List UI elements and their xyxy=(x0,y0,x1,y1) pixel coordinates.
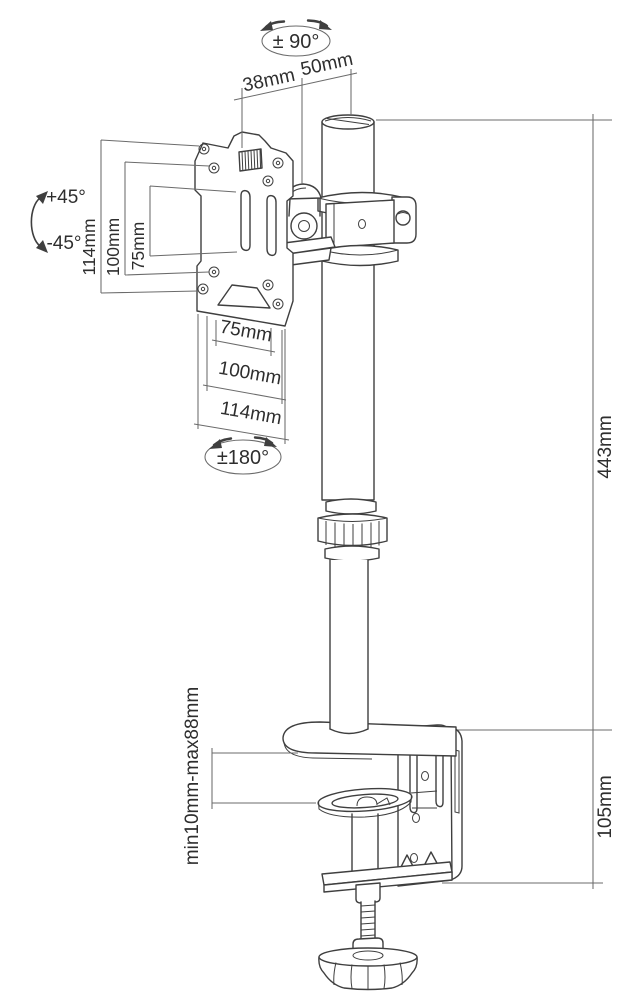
dim-clamp-grip: min10mm-max88mm xyxy=(182,687,316,865)
pole-upper-tube xyxy=(322,115,374,500)
clamp-star-knob xyxy=(319,948,417,990)
diagram-svg: ± 90° 38mm 50mm +45° -45° 114mm 100mm 75… xyxy=(0,0,630,1000)
rotation-plate-label: ±180° xyxy=(217,447,269,469)
tilt-up-label: +45° xyxy=(46,187,86,208)
desk-clamp xyxy=(283,560,462,990)
offset-front-label: 38mm xyxy=(241,65,297,97)
pivot-bolt-head xyxy=(291,213,317,239)
clamp-top-plate xyxy=(283,722,456,756)
pole-lower-fill xyxy=(330,560,368,734)
collar-lower-flange xyxy=(325,546,379,561)
vesa-v100-label: 100mm xyxy=(103,218,123,276)
tilt-down-label: -45° xyxy=(46,233,81,254)
rotation-cw-arrowhead-icon xyxy=(264,437,277,447)
vesa-v114-label: 114mm xyxy=(79,218,99,275)
rotation-ccw-arrowhead-icon xyxy=(260,21,273,31)
dim-vesa-horizontal: 75mm 100mm 114mm ±180° xyxy=(194,314,289,474)
rotation-cw-arrowhead-icon xyxy=(319,20,332,30)
height-adjust-collar xyxy=(318,499,387,561)
pole-height-label: 443mm xyxy=(595,415,616,478)
vesa-h114-label: 114mm xyxy=(219,398,284,429)
dim-tilt: +45° -45° xyxy=(31,187,86,254)
clamp-grip-range-label: min10mm-max88mm xyxy=(182,687,203,865)
rotation-pole-label: ± 90° xyxy=(273,31,320,53)
pole-clamp-ring xyxy=(318,193,416,266)
clamp-post-fill xyxy=(352,812,378,876)
vesa-v75-label: 75mm xyxy=(128,222,148,271)
mount-dimension-diagram: ± 90° 38mm 50mm +45° -45° 114mm 100mm 75… xyxy=(0,0,630,1000)
pole-upper-body xyxy=(322,122,374,500)
clamp-height-label: 105mm xyxy=(595,775,616,838)
collar-upper-flange xyxy=(326,499,376,514)
tilt-arc-icon xyxy=(31,198,40,246)
ring-front-block xyxy=(326,200,394,248)
vesa-plate xyxy=(195,132,293,326)
ring-lug-ball-stud xyxy=(396,211,410,225)
vesa-h100-label: 100mm xyxy=(217,358,283,390)
